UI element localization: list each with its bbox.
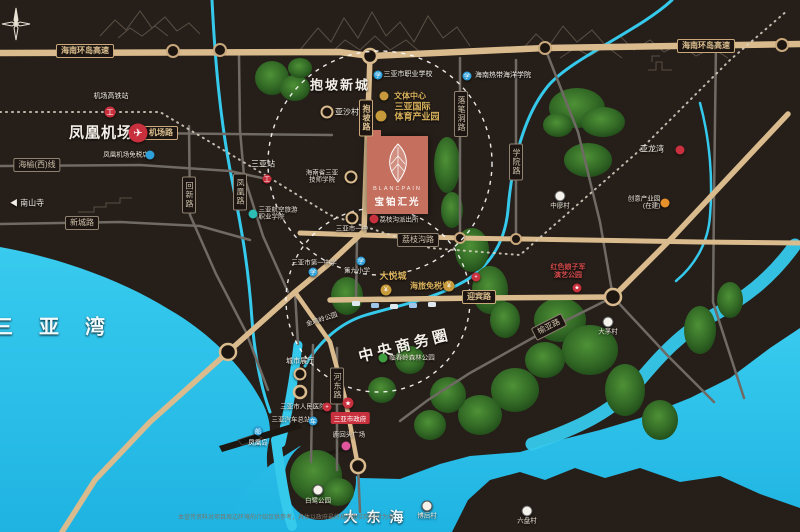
road-label-hedong: 河东路 <box>330 368 344 405</box>
road-label-jichang: 机场路 <box>144 126 178 140</box>
city-gov-label: 三亚市政府 <box>331 412 370 424</box>
yasha-village-label: 亚沙村 <box>335 107 359 116</box>
school-glyph: 学 <box>358 257 364 266</box>
bus-station-icon: 车 <box>309 417 318 426</box>
jishi-college-line2: 技师学院 <box>306 177 339 184</box>
project-site[interactable]: BLANCPAIN 宝铂汇光 <box>367 136 428 214</box>
railway-station-icon: 工 <box>263 175 272 184</box>
yalong-bay-icon <box>676 146 685 155</box>
water-label-sanya-bay: 三亚湾 <box>0 317 131 340</box>
shop-glyph: ¥ <box>384 287 388 294</box>
road-label-haiyu-west: 海榆(西)线 <box>13 158 60 172</box>
bohou-village-label: 博后村 <box>417 512 437 519</box>
road-label-luobidong: 落笔洞路 <box>454 91 468 137</box>
ocean-univ-label: 海南热带海洋学院 <box>475 72 531 80</box>
road-label-lizhigou: 荔枝沟路 <box>397 233 439 247</box>
project-brand: BLANCPAIN <box>373 186 422 192</box>
nanshan-temple-label: ◀ 南山寺 <box>10 198 44 207</box>
hospital-glyph: + <box>474 274 478 280</box>
yizhong-icon <box>346 212 359 225</box>
peoples-hospital-icon: + <box>323 403 332 412</box>
linchun-park-label: 临春岭森林公园 <box>389 354 435 361</box>
school-glyph: 学 <box>310 268 316 277</box>
road-label-xueyuan: 学院路 <box>509 144 523 181</box>
city-hall-icon <box>294 368 307 381</box>
sports-park-line1: 三亚国际 <box>394 102 439 112</box>
lizhigou-police-label: 荔枝沟派出所 <box>380 216 419 223</box>
road-label-fenghuang: 凤凰路 <box>233 174 247 211</box>
airplane-glyph: ✈ <box>133 127 142 140</box>
disclaimer-text: 本宣传资料对项目周边环境的介绍仅供参考，具体以政府最终规划及实际交付为准 <box>178 512 394 521</box>
sanya-station-label: 三亚站 <box>251 159 275 168</box>
liupan-village-label: 六盘村 <box>517 517 537 524</box>
no1-school-icon: 学 <box>309 268 318 277</box>
location-map: BLANCPAIN 宝铂汇光 抱坡新城 中央商务圈 三亚湾 大东海 海南环岛高速… <box>0 0 800 532</box>
tech-park-icon <box>661 199 670 208</box>
bohou-village-icon <box>422 501 433 512</box>
arrow-left-icon: ◀ <box>10 198 18 207</box>
city-gov-icon: ★ <box>343 398 354 409</box>
school-glyph: 学 <box>375 71 381 80</box>
nanshan-text: 南山寺 <box>20 198 44 207</box>
project-name: 宝铂汇光 <box>374 194 420 208</box>
bus-glyph: 车 <box>310 417 316 426</box>
no9-primary-icon: 学 <box>357 257 366 266</box>
city-hall-label: 城市展厅 <box>286 358 314 366</box>
joy-city-label: 大悦城 <box>379 271 406 281</box>
airport-dutyfree-label: 凤凰机场免税店 <box>103 151 149 158</box>
peoples-hospital-label: 三亚市人民医院 <box>280 403 326 410</box>
sports-park-line2: 体育产业园 <box>394 112 439 122</box>
red-show-line2: 演艺公园 <box>551 272 586 280</box>
area-label-baopo: 抱坡新城 <box>310 79 370 94</box>
lizhigou-police-icon <box>370 215 379 224</box>
phoenix-island-label: 凤凰岛 <box>248 439 268 446</box>
red-show-icon: ★ <box>573 284 582 293</box>
vocational-school-icon: 学 <box>374 71 383 80</box>
project-leaf-logo <box>380 142 416 184</box>
joy-city-icon: ¥ <box>381 285 392 296</box>
road-label-expressway-left: 海南环岛高速 <box>56 44 114 58</box>
hospital-icon: + <box>472 273 481 282</box>
bus-station-label: 三亚汽车总站 <box>272 416 311 423</box>
liupan-village-icon <box>522 506 533 517</box>
egret-park-icon <box>313 485 324 496</box>
duty-free-icon: ¥ <box>444 281 455 292</box>
vocational-school-label: 三亚市职业学校 <box>384 71 433 79</box>
no9-primary-label: 第九小学 <box>344 267 370 274</box>
star-glyph: ★ <box>345 399 351 407</box>
star-glyph: ★ <box>574 285 579 292</box>
road-label-xincheng: 新城路 <box>65 216 99 230</box>
shop-glyph: ¥ <box>447 283 451 290</box>
aviation-college-icon <box>249 210 258 219</box>
airplane-icon: ✈ <box>129 124 148 143</box>
jishi-college-icon <box>345 171 358 184</box>
aviation-college-line2: 职业学院 <box>259 214 298 221</box>
boat-glyph: 船 <box>255 427 261 436</box>
airport-dutyfree-icon <box>146 151 155 160</box>
sports-center-label: 文体中心 <box>394 91 426 100</box>
road-label-baopo: 抱坡路 <box>359 100 373 137</box>
luhuitou-icon <box>342 442 351 451</box>
damao-village-icon <box>603 317 614 328</box>
map-canvas <box>0 0 800 532</box>
linchun-park-icon <box>379 354 388 363</box>
red-show-line1: 红色娘子军 <box>551 264 586 272</box>
yasha-village-icon <box>321 106 334 119</box>
sports-center-icon <box>380 92 389 101</box>
school-glyph: 学 <box>464 72 470 81</box>
tech-park-line2: (在建) <box>628 203 661 210</box>
damao-village-label: 大茅村 <box>598 328 618 335</box>
airport-label: 凤凰机场 <box>69 124 133 141</box>
yizhong-label: 三亚市一中 <box>336 225 369 232</box>
phoenix-island-icon: 船 <box>254 427 263 436</box>
road-label-huixin: 回新路 <box>182 177 196 214</box>
no1-school-label: 三亚市第一中学 <box>291 259 337 266</box>
airport-hsr-label: 机场高铁站 <box>94 93 129 101</box>
luhuitou-label: 鹿回头广场 <box>333 431 366 438</box>
road-label-yingbin: 迎宾路 <box>462 290 496 304</box>
yalong-bay-label: 亚龙湾 <box>640 144 664 153</box>
zhongliao-village-icon <box>555 191 566 202</box>
hospital-glyph: + <box>325 404 329 410</box>
egret-park-label: 白鹭公园 <box>305 497 331 504</box>
ocean-univ-icon: 学 <box>463 72 472 81</box>
sports-park-icon <box>376 111 387 122</box>
train-glyph: 工 <box>107 107 114 117</box>
train-glyph: 工 <box>264 175 270 184</box>
hsr-station-icon: 工 <box>105 107 116 118</box>
road-label-expressway-right: 海南环岛高速 <box>677 39 735 53</box>
zhongliao-village-label: 中廖村 <box>550 202 570 209</box>
